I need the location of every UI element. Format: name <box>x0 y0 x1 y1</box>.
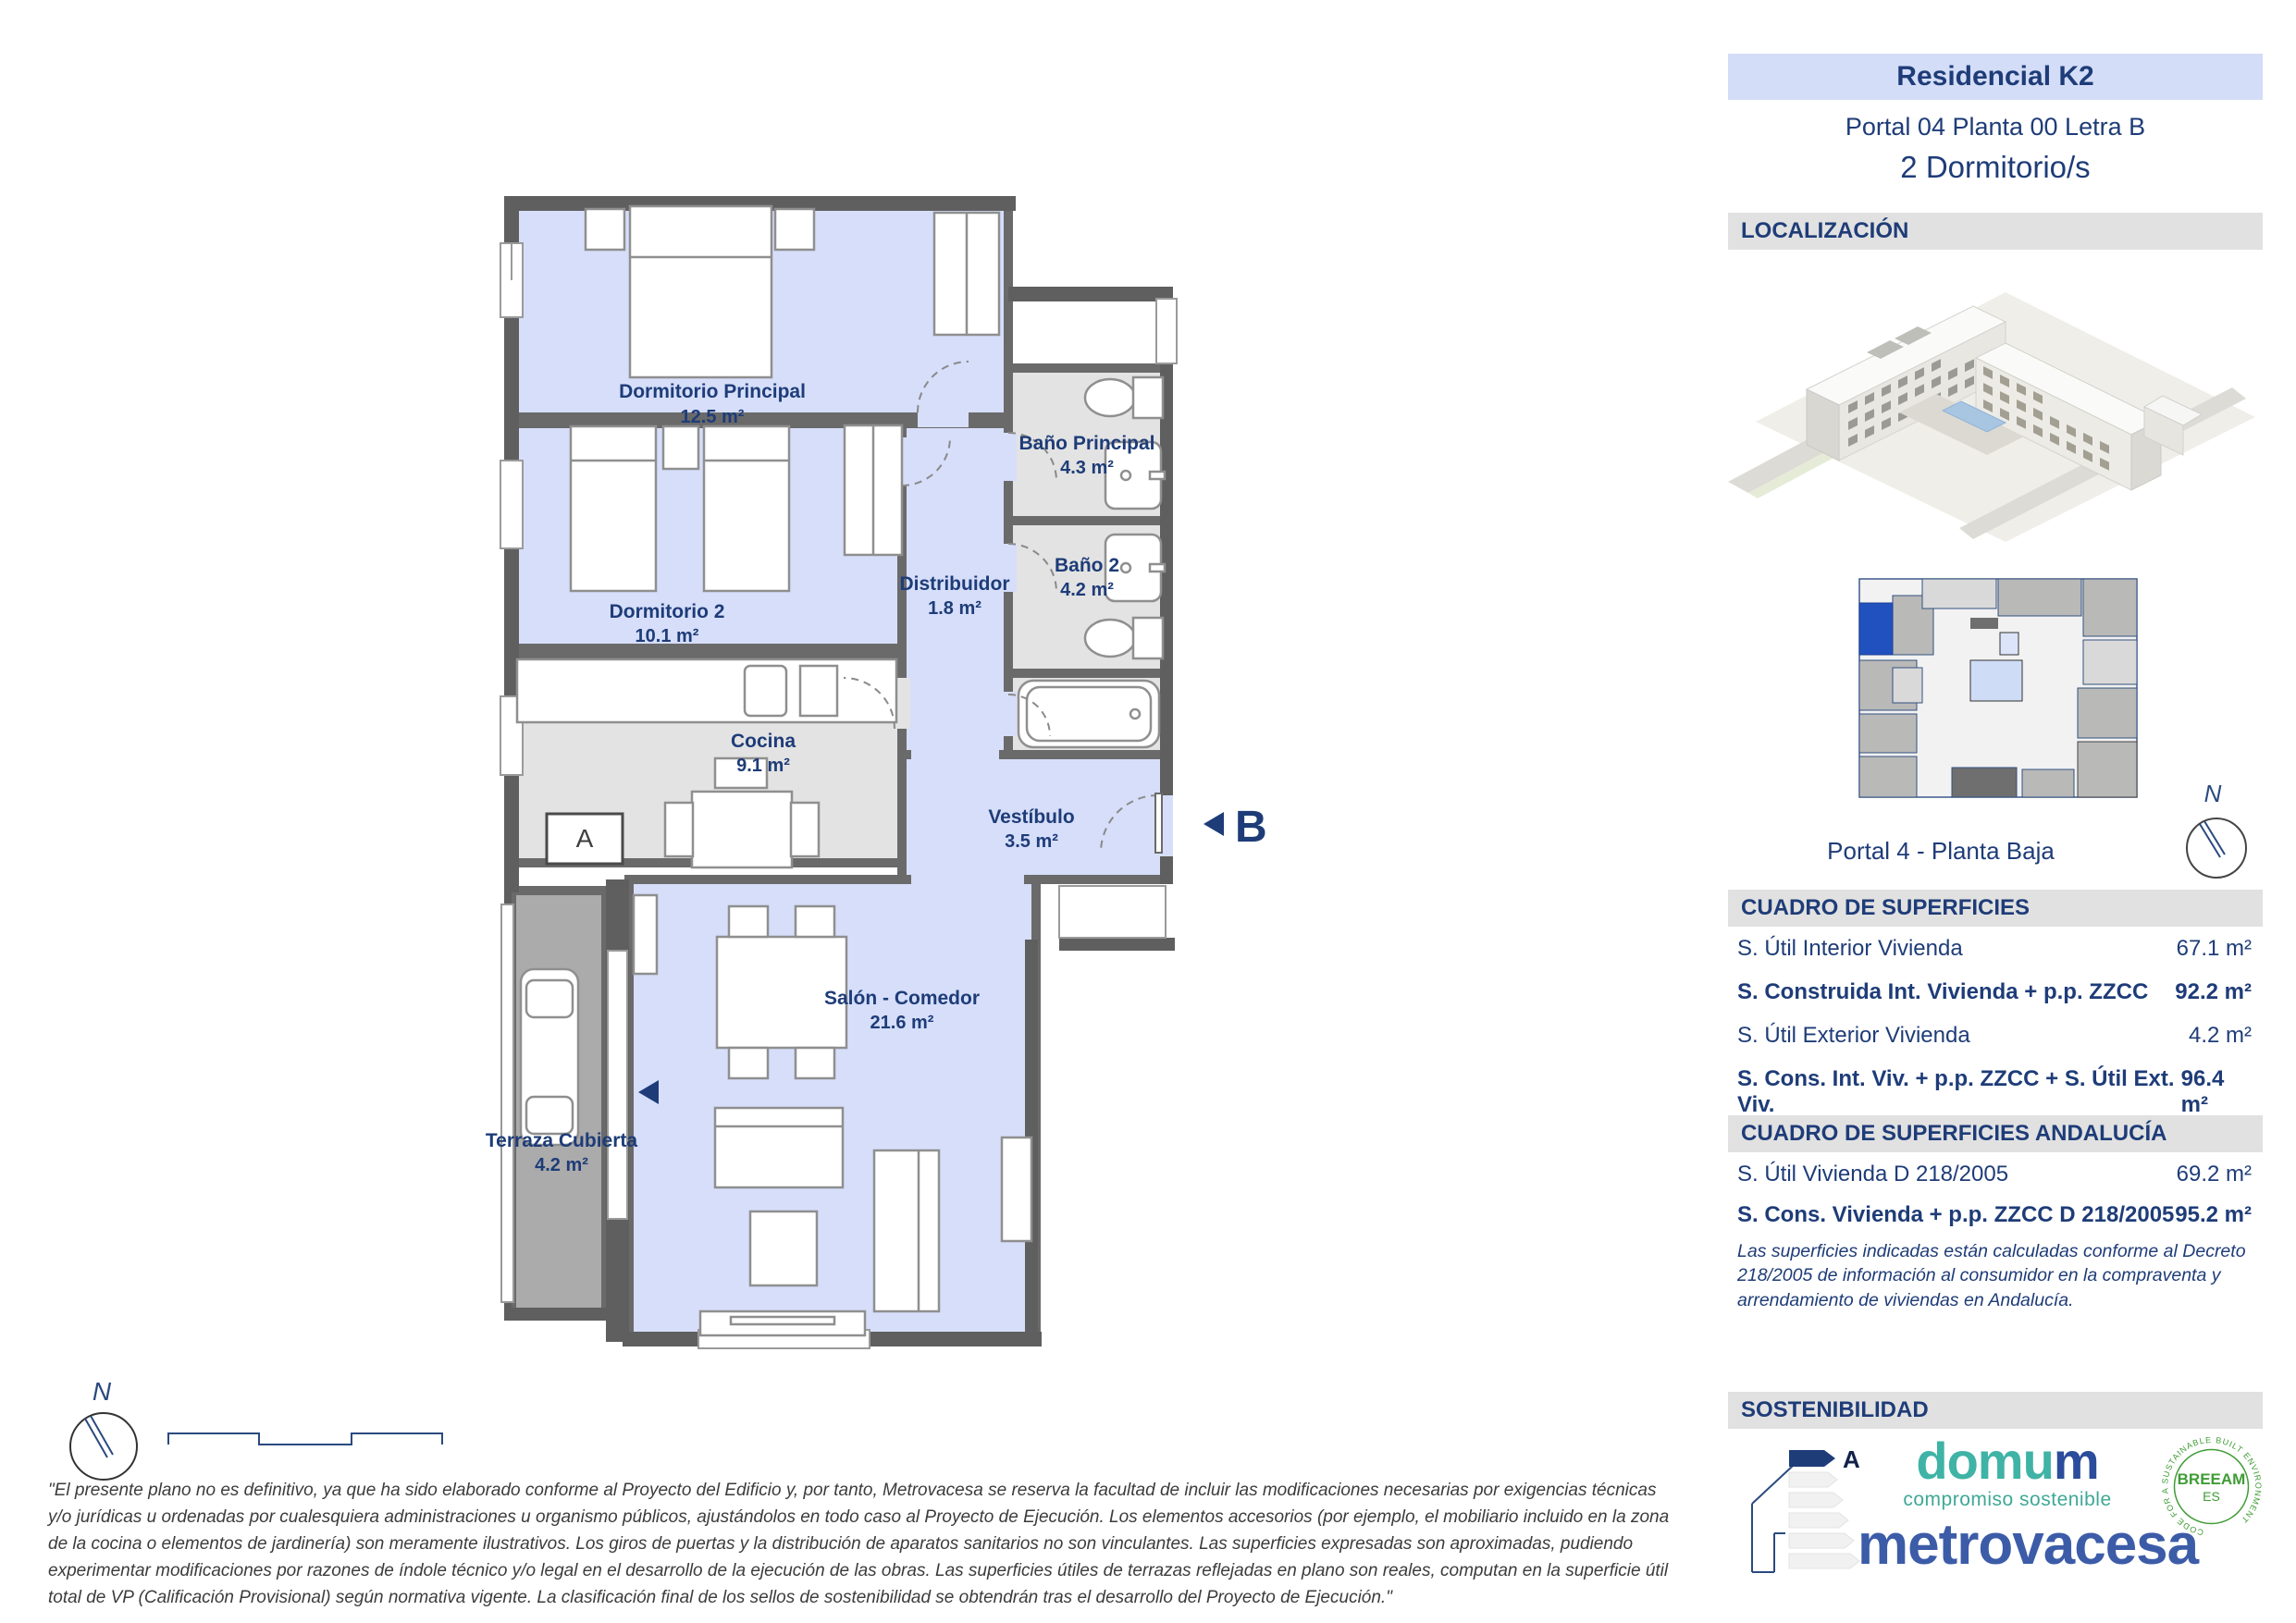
keyplan-caption: Portal 4 - Planta Baja <box>1728 837 2154 866</box>
compass-needle-icon <box>2200 821 2225 857</box>
andalucia-note: Las superficies indicadas están calculad… <box>1737 1239 2255 1312</box>
compass-n-label: N <box>2204 781 2222 807</box>
label-distribuidor: Distribuidor <box>900 573 1010 595</box>
label-salon-comedor: Salón - Comedor <box>824 988 980 1009</box>
kitchen-counter <box>517 659 896 722</box>
domum-wordmark-navy: m <box>2054 1432 2099 1490</box>
sofa <box>715 1108 843 1187</box>
lounger-foot <box>526 1097 573 1134</box>
surface-row: S. Cons. Int. Viv. + p.p. ZZCC + S. Útil… <box>1737 1066 2252 1118</box>
localizacion-header: LOCALIZACIÓN <box>1728 213 2263 250</box>
window-vestibulo <box>1059 886 1166 938</box>
domum-logo: domum compromiso sostenible <box>1878 1435 2137 1511</box>
floor-plan-drawing: Dormitorio Principal 12.5 m² Dormitorio … <box>467 155 1300 1367</box>
toilet <box>1085 379 1135 416</box>
sostenibilidad-header: SOSTENIBILIDAD <box>1728 1392 2263 1429</box>
toilet-tank <box>1133 618 1163 658</box>
surface-label: S. Útil Vivienda D 218/2005 <box>1737 1162 2008 1187</box>
surface-label: S. Cons. Int. Viv. + p.p. ZZCC + S. Útil… <box>1737 1066 2181 1118</box>
surface-value: 92.2 m² <box>2175 979 2252 1005</box>
chair <box>665 803 693 856</box>
surfaces-andalucia-header: CUADRO DE SUPERFICIES ANDALUCÍA <box>1728 1115 2263 1152</box>
surface-row: S. Cons. Vivienda + p.p. ZZCC D 218/2005… <box>1737 1202 2252 1228</box>
chair <box>729 1048 768 1078</box>
surface-value: 95.2 m² <box>2175 1202 2252 1228</box>
page-title: Residencial K2 <box>1728 54 2263 100</box>
legal-disclaimer: "El presente plano no es definitivo, ya … <box>48 1478 1684 1611</box>
scale-bar <box>167 1424 444 1452</box>
label-dormitorio-2-area: 10.1 m² <box>636 626 699 646</box>
label-terraza: Terraza Cubierta <box>486 1130 637 1151</box>
surface-label: S. Cons. Vivienda + p.p. ZZCC D 218/2005 <box>1737 1202 2174 1228</box>
surface-value: 96.4 m² <box>2181 1066 2252 1118</box>
armchair-sofa <box>874 1150 939 1311</box>
unit-subtitle: Portal 04 Planta 00 Letra B <box>1728 113 2263 141</box>
compass-circle <box>2187 818 2246 878</box>
label-dormitorio-2: Dormitorio 2 <box>610 601 725 622</box>
terrace-glass-door <box>608 951 627 1219</box>
kitchen-table <box>692 792 792 867</box>
localizacion-render <box>1728 255 2263 542</box>
keyplan-pool <box>1970 660 2022 701</box>
label-cocina: Cocina <box>731 731 796 752</box>
toilet-tank <box>1133 377 1163 418</box>
section-a-label: A <box>576 824 594 853</box>
radiator <box>634 895 657 974</box>
label-vestibulo-area: 3.5 m² <box>1005 831 1058 852</box>
label-vestibulo: Vestíbulo <box>988 806 1074 828</box>
single-bed <box>571 426 656 591</box>
compass-circle <box>70 1413 137 1480</box>
toilet <box>1085 620 1135 657</box>
label-terraza-area: 4.2 m² <box>535 1155 588 1175</box>
label-distribuidor-area: 1.8 m² <box>928 598 981 619</box>
compass-n-label: N <box>93 1377 112 1406</box>
surface-row: S. Útil Interior Vivienda 67.1 m² <box>1737 936 2252 962</box>
surface-label: S. Útil Exterior Vivienda <box>1737 1023 1970 1049</box>
label-cocina-area: 9.1 m² <box>736 756 790 776</box>
surface-row: S. Construida Int. Vivienda + p.p. ZZCC … <box>1737 979 2252 1005</box>
entry-arrow-icon <box>1204 812 1224 836</box>
kitchen-hob <box>800 666 837 716</box>
nightstand <box>586 209 624 250</box>
chair <box>796 1048 834 1078</box>
chair <box>796 906 834 937</box>
label-bano-2-area: 4.2 m² <box>1060 580 1114 600</box>
coffee-table <box>750 1211 817 1285</box>
entry-b-label: B <box>1235 803 1267 852</box>
nightstand <box>663 426 698 469</box>
surface-label: S. Construida Int. Vivienda + p.p. ZZCC <box>1737 979 2148 1005</box>
window-dormitorio-2 <box>500 461 523 548</box>
keyplan-highlighted-unit <box>1859 603 1893 655</box>
metrovacesa-logo: metrovacesa <box>1858 1517 2198 1574</box>
chair <box>791 803 819 856</box>
plan-compass: N <box>56 1376 157 1487</box>
bedroom-count: 2 Dormitorio/s <box>1728 150 2263 185</box>
label-bano-2: Baño 2 <box>1055 555 1119 576</box>
keyplan <box>1841 575 2155 806</box>
energy-rating-letter: A <box>1843 1445 1860 1473</box>
label-dormitorio-principal-area: 12.5 m² <box>681 407 745 427</box>
closet-bano-principal <box>1008 292 1166 368</box>
compass-needle-icon <box>85 1416 113 1457</box>
surface-row: S. Útil Vivienda D 218/2005 69.2 m² <box>1737 1162 2252 1187</box>
breeam-es: ES <box>2203 1489 2220 1504</box>
surface-value: 67.1 m² <box>2177 936 2252 962</box>
window-bano-principal <box>1156 299 1177 363</box>
entry-door-leaf <box>1155 793 1162 853</box>
label-salon-comedor-area: 21.6 m² <box>870 1013 934 1033</box>
label-bano-principal-area: 4.3 m² <box>1060 458 1114 478</box>
tv <box>731 1317 834 1324</box>
keyplan-compass: N <box>2172 781 2265 888</box>
surface-value: 69.2 m² <box>2177 1162 2252 1187</box>
lounger-head <box>526 980 573 1017</box>
double-bed <box>630 206 772 377</box>
kitchen-sink <box>745 666 786 716</box>
surfaces-header: CUADRO DE SUPERFICIES <box>1728 890 2263 927</box>
floor-plan-sheet: Dormitorio Principal 12.5 m² Dormitorio … <box>0 0 2296 1623</box>
domum-wordmark-teal: domu <box>1916 1432 2053 1490</box>
energy-arrow-a <box>1789 1450 1835 1467</box>
terrace-railing <box>501 904 513 1302</box>
chair <box>729 906 768 937</box>
label-dormitorio-principal: Dormitorio Principal <box>619 381 806 402</box>
label-bano-principal: Baño Principal <box>1018 433 1154 454</box>
surface-label: S. Útil Interior Vivienda <box>1737 936 1963 962</box>
domum-tagline: compromiso sostenible <box>1878 1489 2137 1511</box>
surface-value: 4.2 m² <box>2189 1023 2252 1049</box>
breeam-name: BREEAM <box>2178 1470 2246 1488</box>
surface-row: S. Útil Exterior Vivienda 4.2 m² <box>1737 1023 2252 1049</box>
side-unit <box>1002 1137 1031 1241</box>
nightstand <box>775 209 814 250</box>
single-bed <box>704 426 789 591</box>
